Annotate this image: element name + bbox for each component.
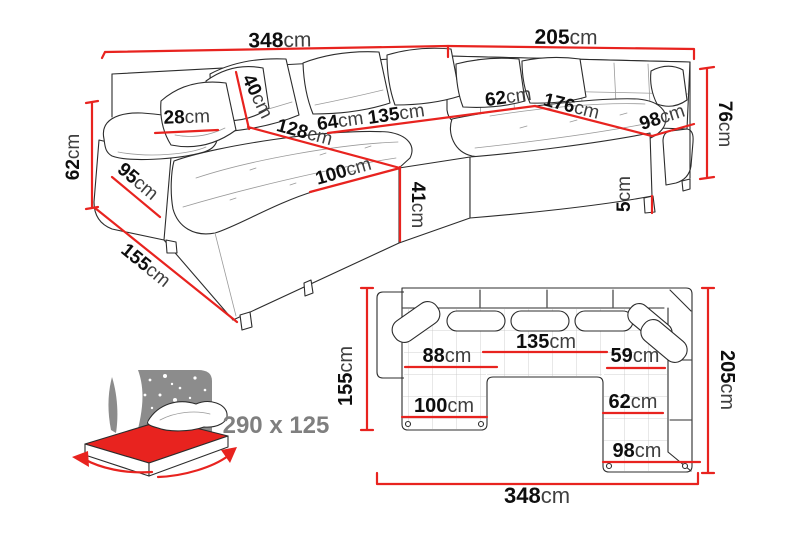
dim-label-62-left: 62cm <box>63 134 84 180</box>
dim-label-top-348: 348cm <box>504 483 570 508</box>
dim-label-41: 41cm <box>407 182 428 228</box>
dim-label-28: 28cm <box>163 106 210 129</box>
dim-label-top-59: 59cm <box>611 345 660 367</box>
top-leg <box>683 464 688 469</box>
top-pillow <box>447 311 505 331</box>
top-view: 155cm 205cm 348cm 135cm 88cm 59cm 62cm 1… <box>335 288 738 508</box>
dim-label-top-205: 205cm <box>716 350 738 410</box>
perspective-view: 348cm 205cm 62cm 155cm 95cm 28cm 40cm 64… <box>63 26 735 330</box>
dim-label-top-135: 135cm <box>516 331 576 353</box>
dim-line-76 <box>700 67 714 179</box>
dim-label-205: 205cm <box>534 26 597 50</box>
dim-label-348: 348cm <box>248 28 311 52</box>
dim-label-top-98: 98cm <box>613 440 662 462</box>
arrow-width-head <box>72 451 89 467</box>
dim-label-top-155: 155cm <box>335 346 357 406</box>
top-leg <box>406 422 411 427</box>
corner-seam <box>670 290 691 311</box>
chaise-bottom-edge <box>233 243 399 320</box>
dim-label-top-62: 62cm <box>609 391 658 413</box>
sofa-leg <box>166 240 177 253</box>
arrow-depth-head <box>221 447 237 463</box>
top-pillow <box>511 311 569 331</box>
dim-label-5: 5cm <box>614 176 635 212</box>
corner-pillow <box>651 66 687 106</box>
sleeping-size-icon: 290 x 125 <box>72 370 329 477</box>
sofa-leg <box>644 196 655 213</box>
sleeping-size-label: 290 x 125 <box>223 412 330 439</box>
sofa-leg <box>304 280 313 296</box>
dim-label-76: 76cm <box>714 101 735 147</box>
dim-label-top-100: 100cm <box>414 395 474 417</box>
sofa-leg <box>682 179 690 191</box>
dim-label-top-88: 88cm <box>423 345 472 367</box>
dim-line-top-205 <box>702 288 714 473</box>
dim-line-top-155 <box>361 288 373 430</box>
right-end-cap <box>663 129 693 185</box>
furniture-dimension-diagram: 348cm 205cm 62cm 155cm 95cm 28cm 40cm 64… <box>0 0 800 533</box>
sofa-leg <box>240 312 252 330</box>
starry-headboard-sliver <box>108 377 117 433</box>
top-leg <box>607 464 612 469</box>
top-leg <box>479 422 484 427</box>
top-pillow <box>575 311 633 331</box>
